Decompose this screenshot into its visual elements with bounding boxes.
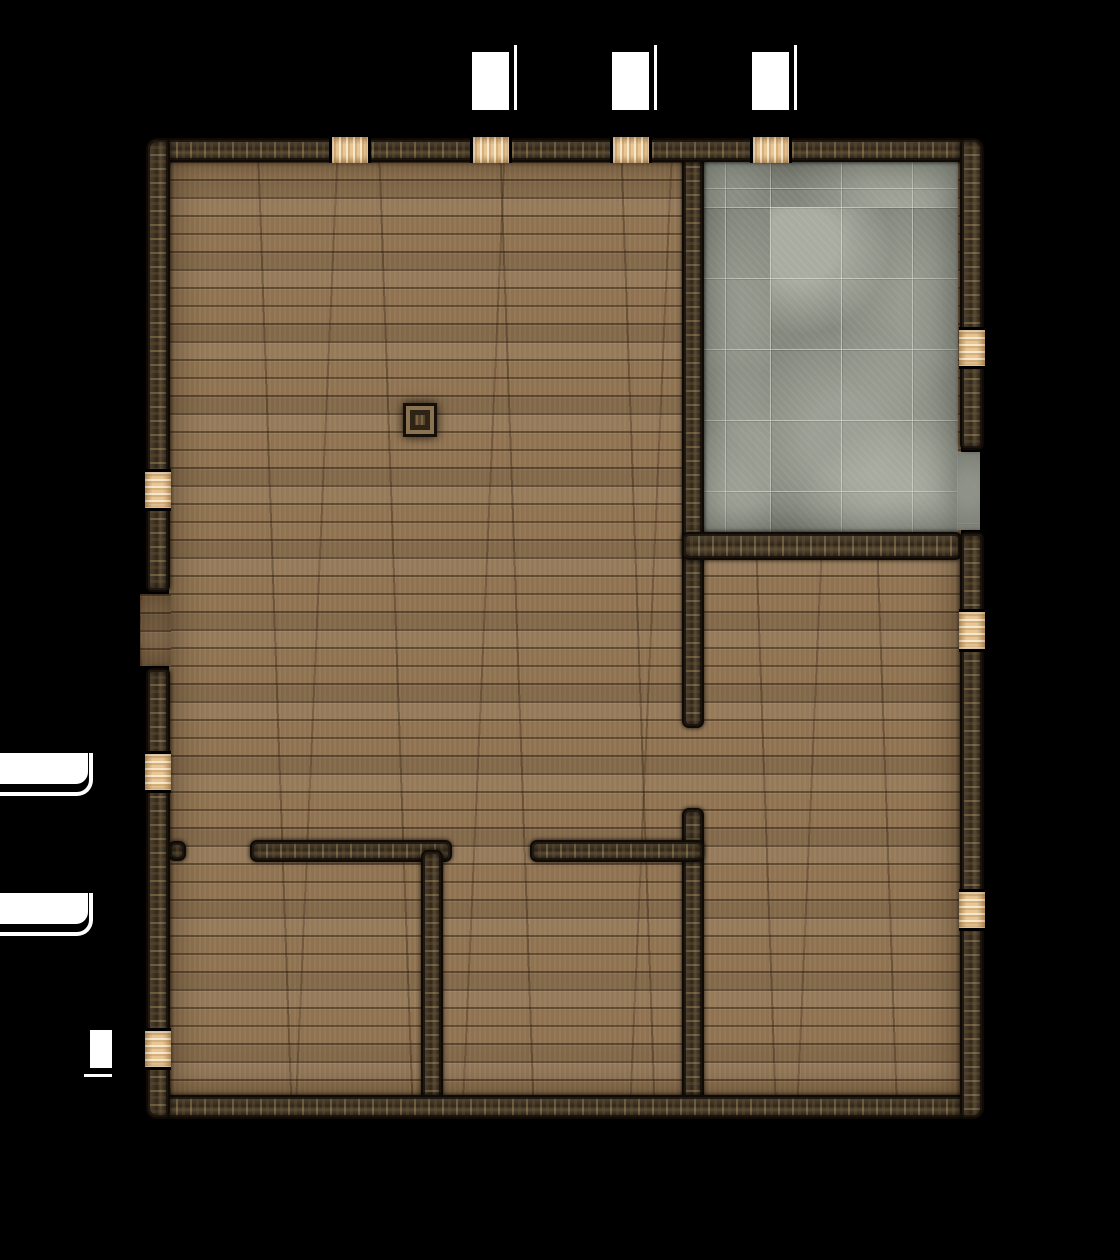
support-pillar (403, 403, 437, 437)
exterior-wall-bottom (146, 1095, 984, 1119)
wood-floor-extension-left (140, 594, 171, 666)
window-marker-line-bottom-left (84, 1074, 112, 1077)
door-top-3[interactable] (610, 137, 652, 163)
door-right-2[interactable] (959, 609, 985, 652)
map-canvas[interactable] (0, 0, 1120, 1260)
stone-tile-floor (700, 160, 958, 534)
interior-wall-bottomleft-right (421, 850, 443, 1102)
door-top-2[interactable] (470, 137, 512, 163)
window-marker-line-top-2 (654, 45, 657, 110)
exterior-wall-right-upper (960, 138, 984, 450)
exterior-wall-top (146, 138, 984, 162)
wall-stub-left (168, 841, 186, 861)
door-left-2[interactable] (145, 751, 171, 793)
interior-wall-bottommiddle-top (530, 840, 704, 862)
door-top-4[interactable] (750, 137, 792, 163)
door-left-1[interactable] (145, 469, 171, 511)
door-left-3[interactable] (145, 1028, 171, 1070)
stone-floor-extension-right (957, 452, 980, 530)
door-right-3[interactable] (959, 889, 985, 931)
door-right-1[interactable] (959, 327, 985, 369)
window-marker-line-top-1 (514, 45, 517, 110)
interior-wall-stoneroom-bottom (682, 532, 962, 560)
window-marker-top-3 (752, 52, 789, 110)
door-top-1[interactable] (329, 137, 371, 163)
window-marker-line-top-3 (794, 45, 797, 110)
window-marker-bottom-left (90, 1030, 112, 1068)
window-marker-left-1 (0, 753, 88, 784)
window-marker-top-1 (472, 52, 509, 110)
interior-wall-stoneroom-left (682, 150, 704, 728)
window-marker-top-2 (612, 52, 649, 110)
window-marker-left-2 (0, 893, 88, 924)
exterior-wall-left-upper (146, 138, 170, 592)
